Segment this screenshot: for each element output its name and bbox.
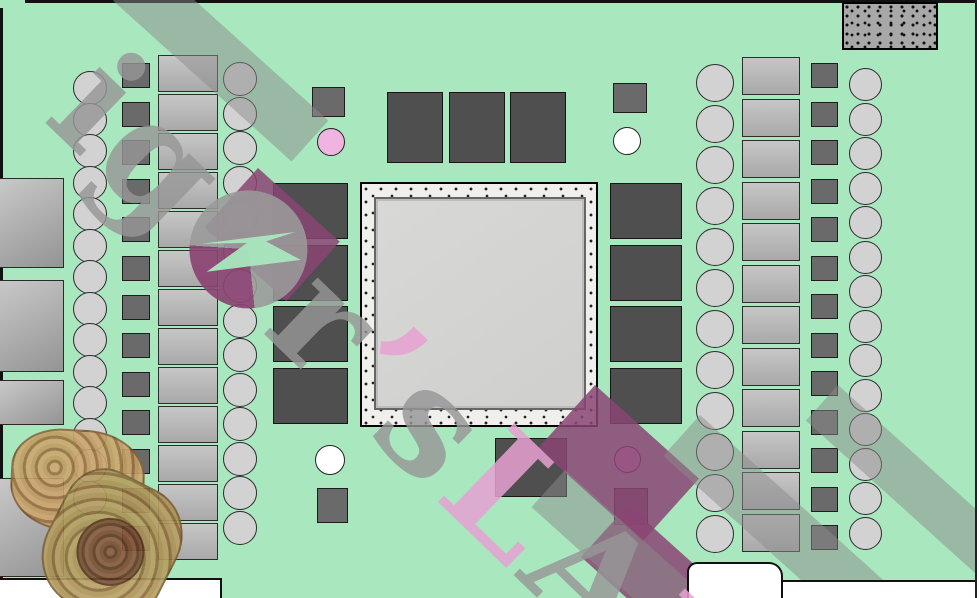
left-capacitor-column-outer: [73, 355, 107, 389]
left-mosfet-column: [122, 179, 150, 204]
left-capacitor-column-inner: [223, 373, 257, 407]
board-notch: [687, 562, 783, 598]
right-mosfet-column: [811, 256, 838, 281]
bracket-connector-2: [0, 280, 64, 372]
left-capacitor-column-inner: [223, 442, 257, 476]
right-capacitor-column-outer: [849, 68, 882, 101]
board-right-margin: [975, 0, 979, 598]
right-mosfet-column: [811, 63, 838, 88]
left-mosfet-column: [122, 140, 150, 165]
right-memory-chip: [610, 245, 682, 301]
board-cutout-bottom-left: [0, 578, 222, 598]
left-choke-column: [158, 133, 218, 170]
left-capacitor-column-inner: [223, 338, 257, 372]
right-memory-chip: [610, 183, 682, 239]
right-mosfet-column: [811, 217, 838, 242]
small-ic-bottom-left: [317, 488, 348, 523]
right-capacitor-column-outer: [849, 482, 882, 515]
right-mosfet-column: [811, 140, 838, 165]
left-choke-column: [158, 328, 218, 365]
board-cutout-bottom-right: [783, 580, 975, 598]
left-mosfet-column: [122, 256, 150, 281]
white-marker-right: [613, 127, 641, 155]
left-mosfet-column: [122, 63, 150, 88]
right-capacitor-column-outer: [849, 241, 882, 274]
left-memory-chip: [273, 368, 348, 424]
right-capacitor-column-outer: [849, 517, 882, 550]
right-mosfet-column: [811, 294, 838, 319]
left-choke-column: [158, 94, 218, 131]
right-capacitor-column-inner: [696, 310, 734, 348]
right-capacitor-column-outer: [849, 206, 882, 239]
left-capacitor-column-inner: [223, 511, 257, 545]
left-capacitor-column-outer: [73, 229, 107, 263]
small-ic-top-right: [613, 83, 647, 113]
left-capacitor-column-outer: [73, 292, 107, 326]
top-memory-chip: [510, 92, 566, 163]
pcb-board: [0, 0, 979, 598]
left-mosfet-column: [122, 488, 150, 513]
left-capacitor-column-inner: [223, 269, 257, 303]
right-capacitor-column-outer: [849, 310, 882, 343]
right-choke-column: [742, 99, 800, 137]
left-choke-column: [158, 172, 218, 209]
left-capacitor-column-inner: [223, 407, 257, 441]
pcb-diagram: igr’sLAB: [0, 0, 979, 598]
right-capacitor-column-outer: [849, 103, 882, 136]
right-mosfet-column: [811, 179, 838, 204]
bracket-connector-4: [0, 478, 64, 577]
top-memory-chip: [449, 92, 505, 163]
left-mosfet-column: [122, 295, 150, 320]
right-choke-column: [742, 223, 800, 261]
right-choke-column: [742, 265, 800, 303]
right-capacitor-column-inner: [696, 228, 734, 266]
bracket-connector-1: [0, 178, 64, 268]
right-choke-column: [742, 306, 800, 344]
left-choke-column: [158, 406, 218, 443]
left-capacitor-column-outer: [73, 323, 107, 357]
right-capacitor-column-outer: [849, 275, 882, 308]
left-capacitor-column-outer: [73, 481, 107, 515]
left-capacitor-column-outer: [73, 166, 107, 200]
right-capacitor-column-inner: [696, 64, 734, 102]
left-mosfet-column: [122, 526, 150, 551]
left-capacitor-column-outer: [73, 71, 107, 105]
right-capacitor-column-inner: [696, 269, 734, 307]
left-capacitor-column-outer: [73, 134, 107, 168]
left-capacitor-column-inner: [223, 131, 257, 165]
right-mosfet-column: [811, 487, 838, 512]
right-capacitor-column-inner: [696, 187, 734, 225]
left-memory-chip: [273, 306, 348, 362]
right-choke-column: [742, 389, 800, 427]
white-marker-left: [315, 445, 345, 475]
top-memory-chip: [387, 92, 443, 163]
right-choke-column: [742, 182, 800, 220]
left-capacitor-column-inner: [223, 476, 257, 510]
left-choke-column: [158, 523, 218, 560]
left-capacitor-column-outer: [73, 418, 107, 452]
right-capacitor-column-inner: [696, 351, 734, 389]
right-mosfet-column: [811, 333, 838, 358]
right-memory-chip: [610, 306, 682, 362]
left-mosfet-column: [122, 372, 150, 397]
left-mosfet-column: [122, 410, 150, 435]
right-mosfet-column: [811, 448, 838, 473]
left-mosfet-column: [122, 217, 150, 242]
left-capacitor-column-outer: [73, 386, 107, 420]
right-capacitor-column-outer: [849, 172, 882, 205]
left-capacitor-column-outer: [73, 103, 107, 137]
right-choke-column: [742, 57, 800, 95]
left-choke-column: [158, 289, 218, 326]
left-mosfet-column: [122, 449, 150, 474]
right-capacitor-column-outer: [849, 137, 882, 170]
left-capacitor-column-inner: [223, 304, 257, 338]
right-choke-column: [742, 140, 800, 178]
pink-marker-left: [317, 128, 345, 156]
hatched-area: [842, 2, 938, 50]
right-capacitor-column-inner: [696, 146, 734, 184]
left-capacitor-column-outer: [73, 449, 107, 483]
right-choke-column: [742, 348, 800, 386]
left-mosfet-column: [122, 333, 150, 358]
right-mosfet-column: [811, 102, 838, 127]
bracket-connector-3: [0, 380, 64, 425]
left-capacitor-column-outer: [73, 260, 107, 294]
gpu-die: [374, 197, 586, 410]
left-choke-column: [158, 445, 218, 482]
right-capacitor-column-inner: [696, 515, 734, 553]
right-capacitor-column-outer: [849, 344, 882, 377]
left-mosfet-column: [122, 102, 150, 127]
right-capacitor-column-inner: [696, 105, 734, 143]
left-capacitor-column-outer: [73, 197, 107, 231]
left-choke-column: [158, 484, 218, 521]
left-choke-column: [158, 250, 218, 287]
left-choke-column: [158, 367, 218, 404]
